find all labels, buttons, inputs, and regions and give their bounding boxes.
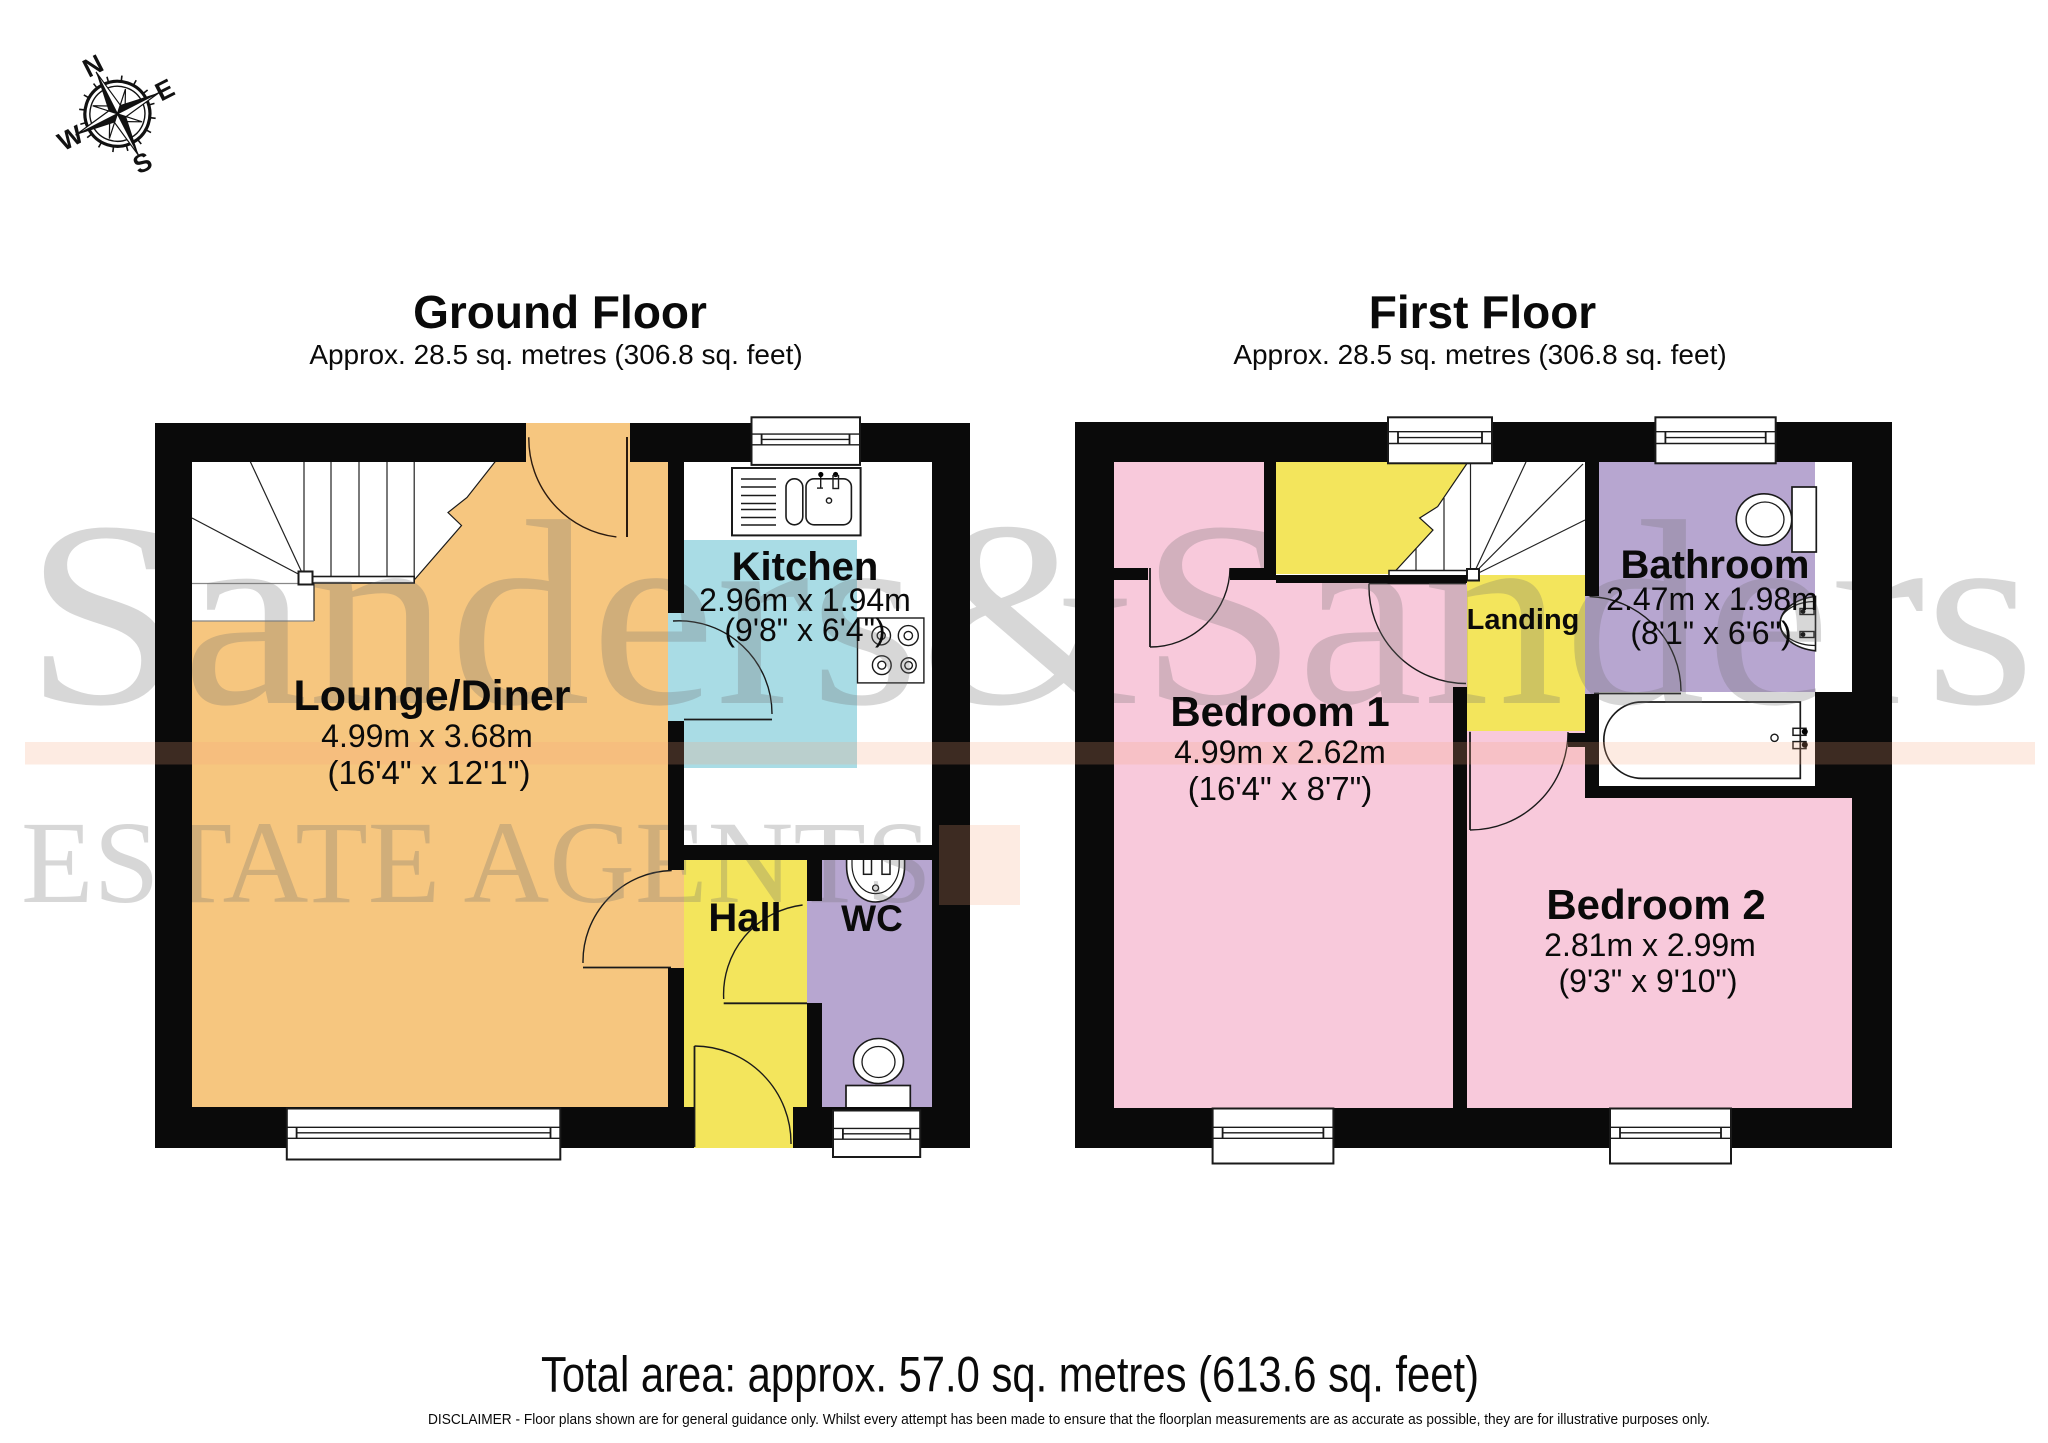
svg-text:Total area: approx. 57.0 sq. m: Total area: approx. 57.0 sq. metres (613… [541,1347,1479,1403]
svg-text:WC: WC [841,898,903,939]
svg-text:Bedroom 2: Bedroom 2 [1546,881,1765,928]
svg-text:DISCLAIMER - Floor plans show: DISCLAIMER - Floor plans shown are for g… [428,1412,1710,1428]
svg-text:Ground Floor: Ground Floor [413,286,707,338]
svg-text:4.99m x 2.62m: 4.99m x 2.62m [1174,734,1386,770]
svg-text:(8'1" x 6'6"): (8'1" x 6'6") [1630,615,1791,651]
svg-text:(9'3" x 9'10"): (9'3" x 9'10") [1558,963,1737,999]
svg-text:2.47m x 1.98m: 2.47m x 1.98m [1606,581,1818,617]
svg-text:(16'4" x 12'1"): (16'4" x 12'1") [328,754,531,791]
svg-text:(9'8" x 6'4"): (9'8" x 6'4") [724,612,885,648]
svg-text:Approx. 28.5 sq. metres (306.8: Approx. 28.5 sq. metres (306.8 sq. feet) [1233,339,1726,370]
svg-text:(16'4" x 8'7"): (16'4" x 8'7") [1188,770,1373,807]
svg-text:Approx. 28.5 sq. metres (306.8: Approx. 28.5 sq. metres (306.8 sq. feet) [309,339,802,370]
svg-text:Landing: Landing [1467,604,1580,636]
svg-text:4.99m x 3.68m: 4.99m x 3.68m [321,718,533,754]
svg-text:Hall: Hall [708,896,781,940]
svg-text:First Floor: First Floor [1369,286,1597,338]
svg-text:2.81m x 2.99m: 2.81m x 2.99m [1544,927,1756,963]
svg-text:Lounge/Diner: Lounge/Diner [293,672,570,720]
svg-text:Bedroom 1: Bedroom 1 [1170,688,1389,735]
